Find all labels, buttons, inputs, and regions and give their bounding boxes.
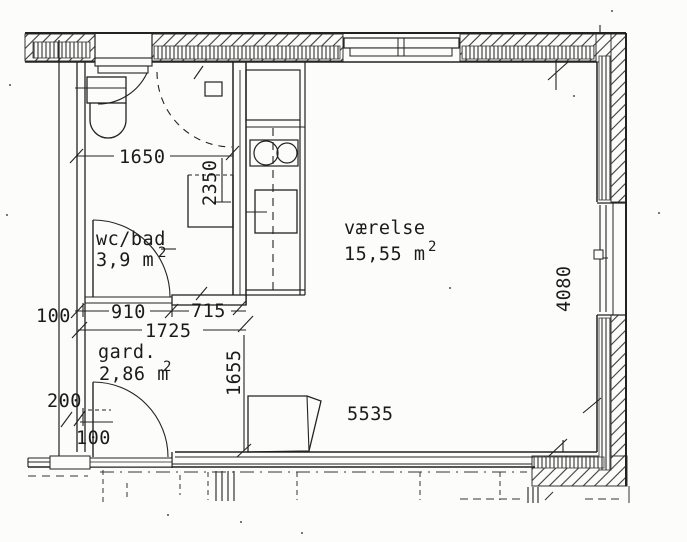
bath-area-sup: 2 xyxy=(158,245,167,261)
toilet xyxy=(75,77,126,138)
dim-1725: 1725 xyxy=(145,321,192,342)
dim-5535: 5535 xyxy=(347,404,394,425)
dashed-door-swing xyxy=(157,72,232,147)
dim-2350: 2350 xyxy=(200,159,221,206)
wardrobe-area-sup: 2 xyxy=(163,359,172,375)
floor-plan: wc/bad 3,9 m 2 værelse 15,55 m 2 gard. 2… xyxy=(0,0,687,542)
bath-room-area: 3,9 m xyxy=(96,250,154,271)
vent-box xyxy=(205,82,222,96)
wardrobe-area: 2,86 m xyxy=(99,364,169,385)
wardrobe-name: gard. xyxy=(98,342,156,363)
dim-100-jamb: 100 xyxy=(76,428,111,449)
wardrobe-unit xyxy=(248,396,321,452)
window-top xyxy=(344,38,459,56)
floor-plan-svg: wc/bad 3,9 m 2 værelse 15,55 m 2 gard. 2… xyxy=(0,0,687,542)
window-right xyxy=(594,203,626,315)
kitchen-hob xyxy=(250,140,298,166)
entry-door-threshold xyxy=(90,458,172,467)
main-room-name: værelse xyxy=(344,218,425,239)
dim-200: 200 xyxy=(47,391,82,412)
bath-exterior-door xyxy=(95,58,152,104)
neighbor-threshold xyxy=(50,456,90,469)
dim-1655: 1655 xyxy=(224,349,245,396)
dim-910: 910 xyxy=(111,302,146,323)
dim-4080: 4080 xyxy=(554,265,575,312)
dim-715: 715 xyxy=(191,301,226,322)
main-room-area: 15,55 m xyxy=(344,244,425,265)
dim-100-left: 100 xyxy=(36,306,71,327)
kitchen-counter xyxy=(246,62,305,295)
main-area-sup: 2 xyxy=(428,239,437,255)
dim-1650: 1650 xyxy=(119,147,166,168)
bath-room-name: wc/bad xyxy=(96,229,166,250)
